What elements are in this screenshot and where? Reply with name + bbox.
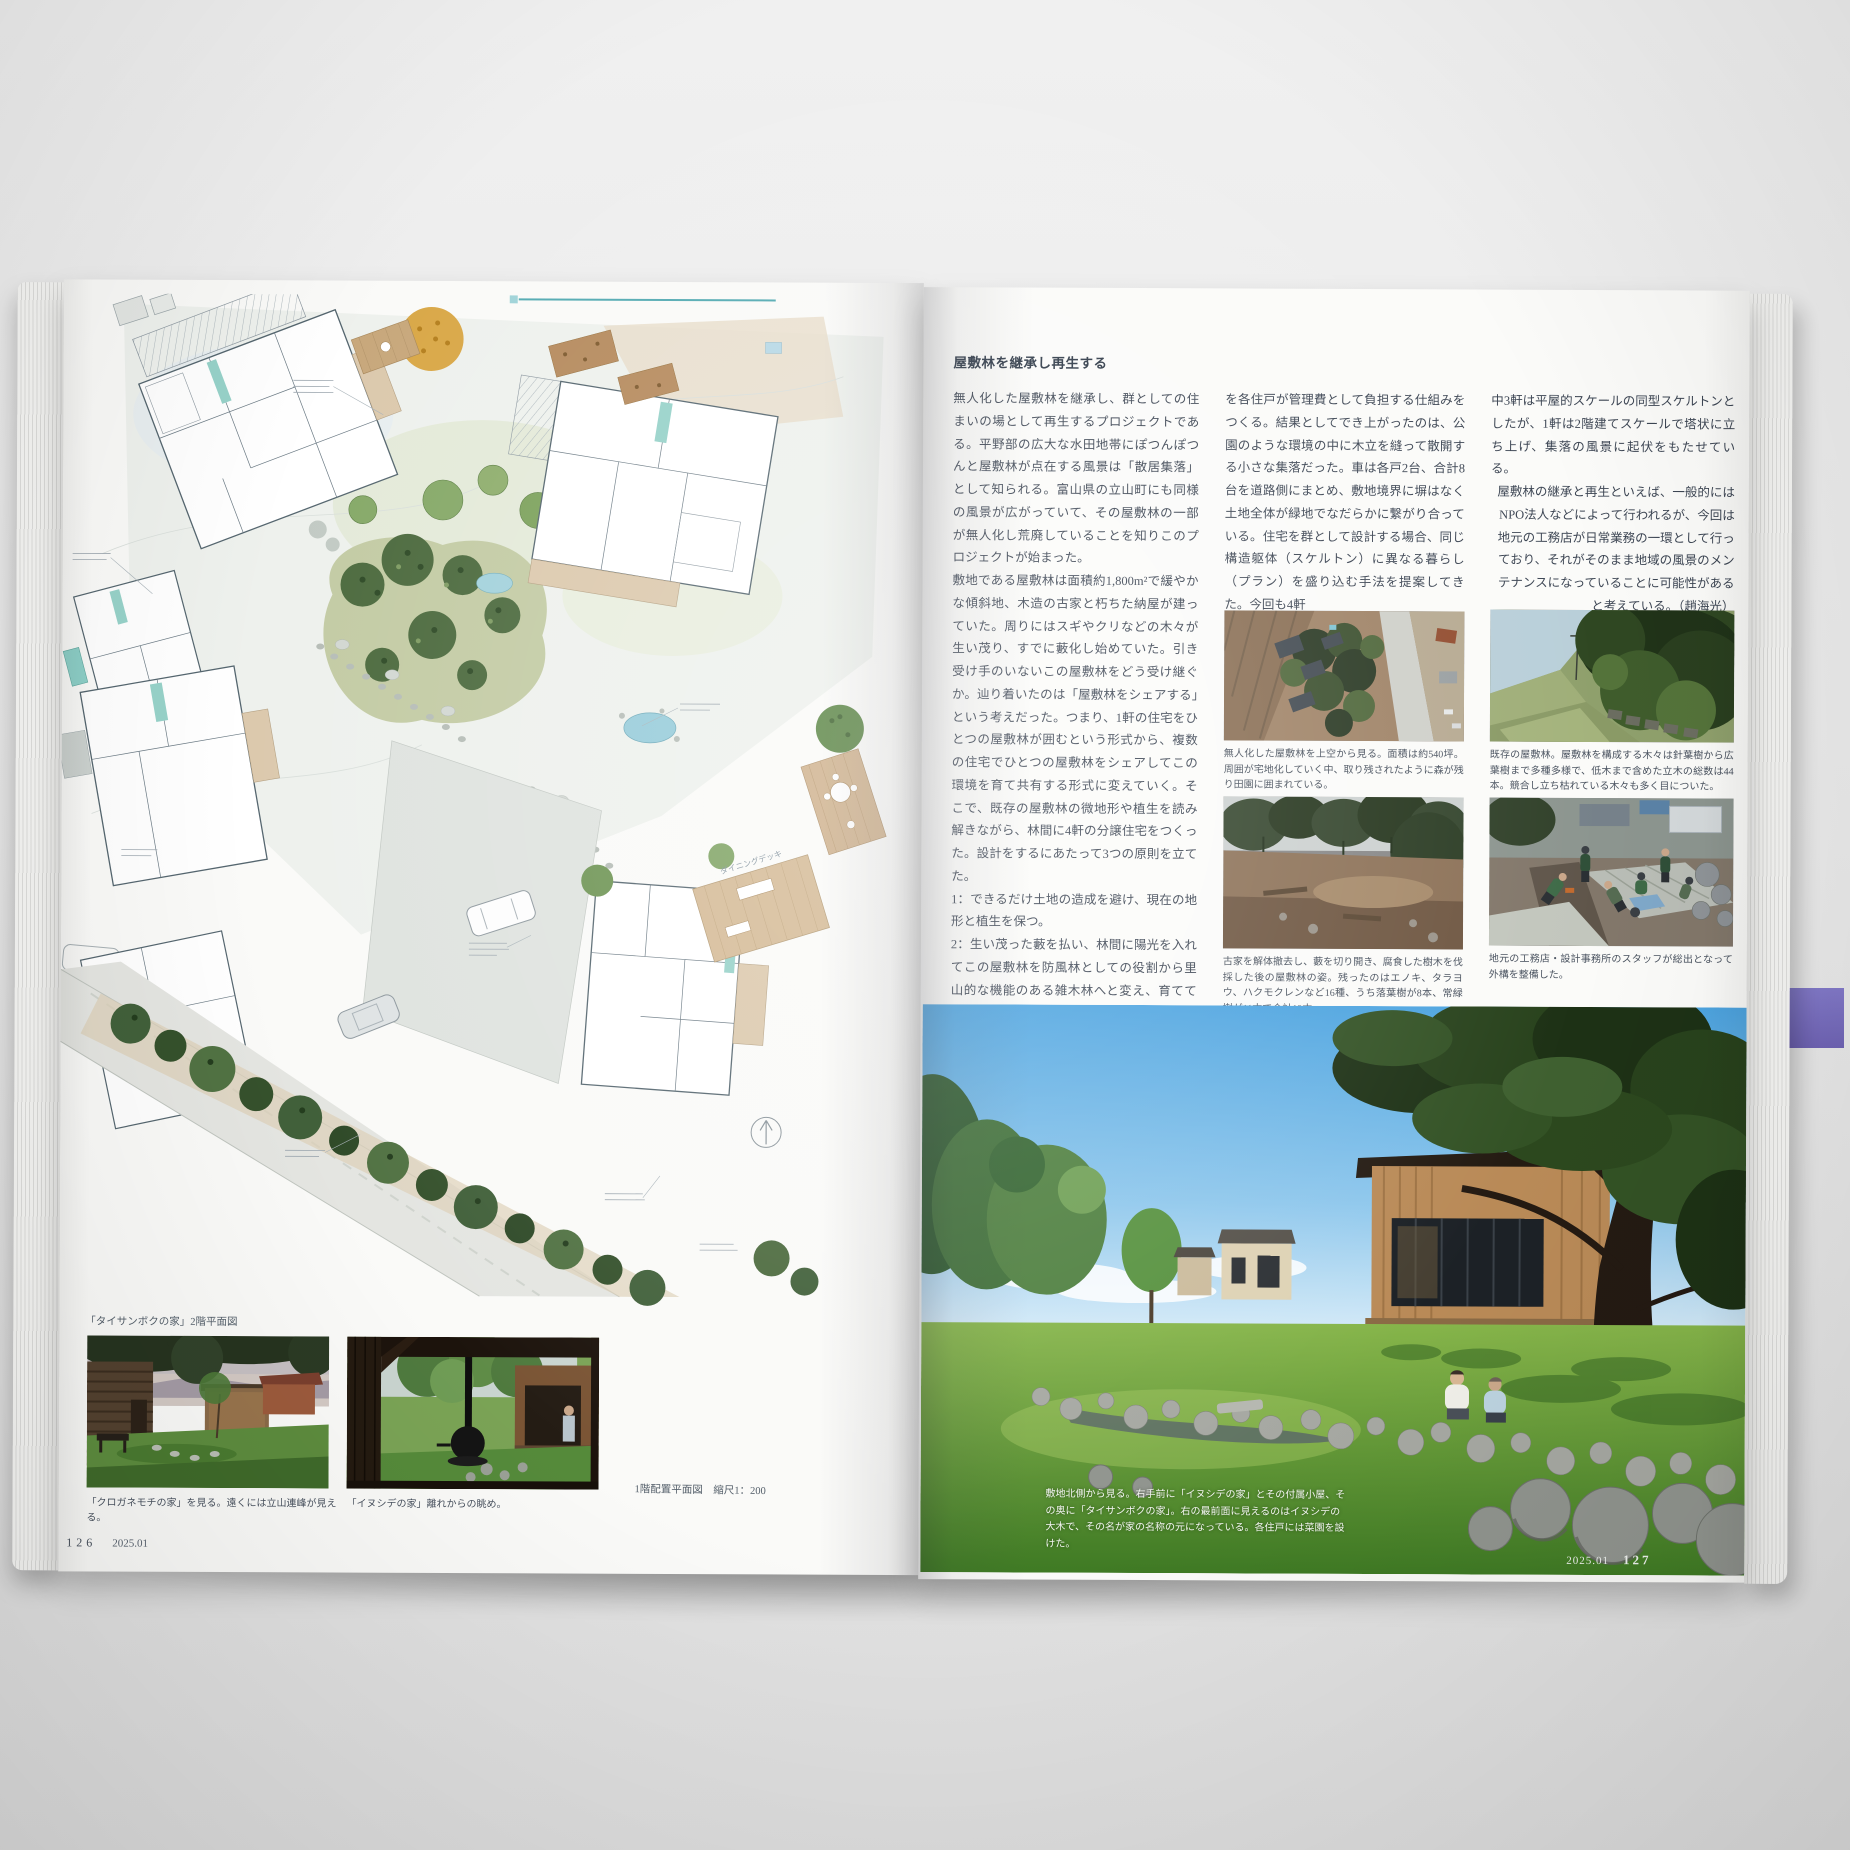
left-page-edges xyxy=(12,282,64,1570)
site-plan-drawing: ダイニングデッキ xyxy=(59,293,923,1312)
article-heading: 屋敷林を継承し再生する xyxy=(953,351,1203,372)
right-issue-date: 2025.01 xyxy=(1566,1555,1609,1567)
left-photo1-caption: 「クロガネモチの家」を見る。遠くには立山連峰が見える。 xyxy=(86,1495,342,1526)
paragraph-with-byline: 屋敷林の継承と再生といえば、一般的にはNPO法人などによって行われるが、今回は地… xyxy=(1490,481,1735,619)
paragraph: 敷地である屋敷林は面積約1,800m²で緩やかな傾斜地、木造の古家と朽ちた納屋が… xyxy=(951,569,1198,889)
paragraph: 無人化した屋敷林を継承し、群としての住まいの場として再生するプロジェクトである。… xyxy=(953,387,1200,570)
aerial-photo-caption: 無人化した屋敷林を上空から見る。面積は約540坪。周囲が宅地化していく中、取り残… xyxy=(1224,746,1464,794)
floor2-plan-label: 「タイサンボクの家」2階平面図 xyxy=(85,1313,237,1329)
aerial-photo xyxy=(1224,610,1465,741)
article-column-3: 中3軒は平屋的スケールの同型スケルトンとしたが、1軒は2階建てスケールで塔状に立… xyxy=(1490,390,1735,619)
workers-photo-caption: 地元の工務店・設計事務所のスタッフが総出となって外構を整備した。 xyxy=(1489,952,1733,984)
article-column-2: を各住戸が管理費として負担する仕組みをつくる。結果としてでき上がったのは、公園の… xyxy=(1224,388,1465,617)
hero-photo-caption: 敷地北側から見る。右手前に「イヌシデの家」とその付属小屋、その奥に「タイサンボク… xyxy=(1045,1487,1345,1554)
grove-photo xyxy=(1490,610,1735,743)
left-issue-date: 2025.01 xyxy=(112,1538,148,1550)
photo-backdrop: ダイニングデッキ 「タイサンボクの家」2階平面図 xyxy=(0,0,1850,1850)
purple-bookmark xyxy=(1786,988,1844,1048)
left-photo2-caption: 「イヌシデの家」離れからの眺め。 xyxy=(346,1497,602,1513)
paragraph: を各住戸が管理費として負担する仕組みをつくる。結果としてでき上がったのは、公園の… xyxy=(1224,388,1465,617)
left-page-number: 126 xyxy=(66,1535,96,1549)
paragraph: 中3軒は平屋的スケールの同型スケルトンとしたが、1軒は2階建てスケールで塔状に立… xyxy=(1491,390,1735,482)
paragraph: 1：できるだけ土地の造成を避け、現在の地形と植生を保つ。 xyxy=(951,888,1197,935)
right-page: 屋敷林を継承し再生する 無人化した屋敷林を継承し、群としての住まいの場として再生… xyxy=(918,287,1750,1583)
left-page-footer: 1262025.01 xyxy=(66,1535,148,1550)
site-plan-title: 1階配置平面図 縮尺1：200 xyxy=(634,1481,765,1498)
hero-photo: 敷地北側から見る。右手前に「イヌシデの家」とその付属小屋、その奥に「タイサンボク… xyxy=(920,1004,1746,1576)
magazine-spread: ダイニングデッキ 「タイサンボクの家」2階平面図 xyxy=(12,277,1793,1587)
right-page-footer: 2025.01127 xyxy=(1566,1552,1651,1568)
right-page-edges xyxy=(1744,294,1793,1584)
left-page: ダイニングデッキ 「タイサンボクの家」2階平面図 xyxy=(58,279,924,1575)
article-column-1: 無人化した屋敷林を継承し、群としての住まいの場として再生するプロジェクトである。… xyxy=(950,387,1199,1093)
cleared-site-photo xyxy=(1223,796,1464,949)
workers-photo xyxy=(1489,798,1734,947)
left-photo-kuroganemochi xyxy=(87,1335,330,1488)
right-page-number: 127 xyxy=(1623,1552,1652,1567)
left-photo-inushide xyxy=(347,1337,600,1490)
grove-photo-caption: 既存の屋敷林。屋敷林を構成する木々は針葉樹から広葉樹まで多種多様で、低木まで含め… xyxy=(1490,748,1734,796)
